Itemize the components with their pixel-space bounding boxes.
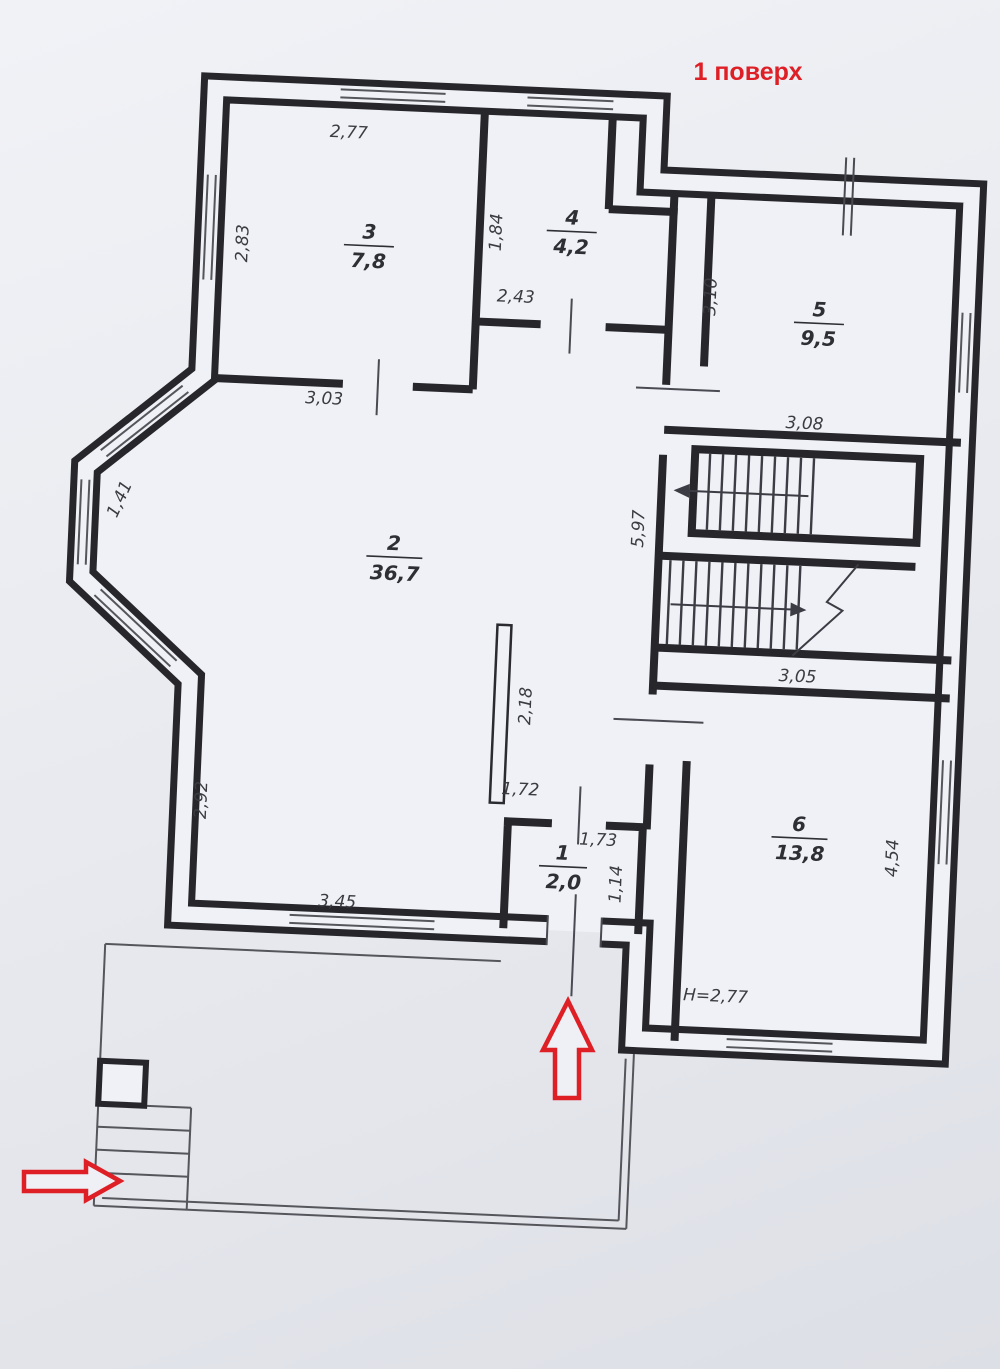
- room-4-number: 4: [564, 205, 580, 230]
- room-2-area: 36,7: [369, 560, 419, 586]
- room-5-number: 5: [812, 297, 827, 322]
- dim-room5-left: 3,10: [700, 277, 722, 316]
- dim-room2-left: 2,92: [191, 781, 213, 820]
- dim-ceiling-height: H=2,77: [683, 985, 749, 1008]
- room-5-area: 9,5: [800, 326, 836, 352]
- dim-room1-right: 1,14: [605, 865, 627, 904]
- floor-plan-svg: 3 7,8 4 4,2 5 9,5 2 36,7 6: [0, 0, 1000, 1369]
- dim-room6-top: 3,05: [778, 666, 817, 688]
- porch-pillar: [98, 1061, 146, 1106]
- room-3-number: 3: [362, 219, 377, 244]
- room-6-area: 13,8: [775, 840, 825, 866]
- dim-room1-upper-right: 1,73: [579, 829, 618, 851]
- dim-room5-bottom: 3,08: [785, 413, 824, 435]
- entrance-arrow-right-icon: [24, 1162, 120, 1200]
- room-3-area: 7,8: [350, 248, 387, 274]
- floor-plan: 3 7,8 4 4,2 5 9,5 2 36,7 6: [50, 79, 979, 1242]
- page-title: 1 поверх: [693, 58, 802, 86]
- dim-stair-hall: 5,97: [628, 509, 650, 548]
- dim-room6-right: 4,54: [882, 839, 904, 878]
- dim-partition: 2,18: [515, 686, 537, 725]
- room-2-number: 2: [386, 531, 401, 556]
- dim-room3-left: 2,83: [232, 224, 254, 263]
- dim-room3-top: 2,77: [329, 122, 368, 144]
- room-1-number: 1: [555, 840, 570, 865]
- scanned-floor-plan-photo: 3 7,8 4 4,2 5 9,5 2 36,7 6: [0, 0, 1000, 1369]
- dim-room4-left: 1,84: [486, 213, 508, 252]
- dim-room3-bottom: 3,03: [305, 388, 344, 410]
- dim-room2-bottom: 3,45: [318, 891, 357, 913]
- dim-room1-top: 1,72: [501, 779, 540, 801]
- room-1-area: 2,0: [545, 869, 582, 895]
- room-6-number: 6: [792, 812, 807, 837]
- entrance-arrow-up-icon: [543, 1001, 592, 1098]
- room-4-area: 4,2: [552, 234, 589, 260]
- dim-room4-bottom: 2,43: [496, 286, 535, 308]
- porch-steps: [94, 1104, 191, 1210]
